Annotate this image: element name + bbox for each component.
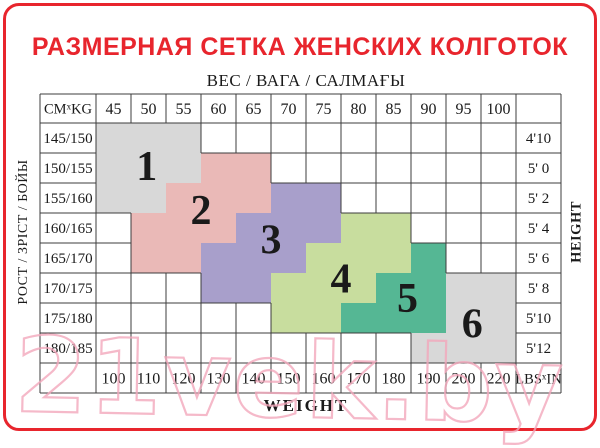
lbs-footer-value: 120 <box>172 371 196 388</box>
cm-row-label: 180/185 <box>43 341 92 357</box>
ft-row-label: 5' 4 <box>528 221 550 237</box>
cm-row-label: 175/180 <box>43 311 92 327</box>
kg-header-value: 50 <box>141 101 157 118</box>
ft-row-label: 5' 8 <box>528 281 549 297</box>
kg-header-value: 85 <box>386 101 402 118</box>
size-region-5 <box>411 243 446 273</box>
size-region-4 <box>341 213 411 243</box>
cm-row-label: 170/175 <box>43 281 92 297</box>
lbs-footer-value: 160 <box>312 371 336 388</box>
size-number-6: 6 <box>462 302 483 348</box>
kg-header-value: 70 <box>281 101 297 118</box>
lbs-footer-value: 140 <box>242 371 266 388</box>
size-region-4 <box>271 273 376 303</box>
size-grid-table: 4550556065707580859095100100110120130140… <box>0 0 600 434</box>
lbs-footer-value: 180 <box>382 371 406 388</box>
size-region-6 <box>446 273 516 303</box>
cm-row-label: 165/170 <box>43 251 92 267</box>
lbs-footer-value: 110 <box>137 371 160 388</box>
size-region-2 <box>131 243 201 273</box>
size-region-2 <box>166 183 271 213</box>
kg-header-value: 55 <box>176 101 192 118</box>
cm-row-label: 160/165 <box>43 221 92 237</box>
size-region-4 <box>271 303 341 333</box>
ft-row-label: 5'12 <box>526 341 551 357</box>
lbs-footer-value: 220 <box>487 371 511 388</box>
lbs-footer-value: 190 <box>417 371 441 388</box>
size-region-2 <box>201 153 271 183</box>
size-number-1: 1 <box>136 144 157 190</box>
ft-row-label: 5' 2 <box>528 191 549 207</box>
size-region-2 <box>131 213 236 243</box>
cm-row-label: 155/160 <box>43 191 92 207</box>
size-region-4 <box>306 243 411 273</box>
size-region-5 <box>341 303 446 333</box>
size-number-3: 3 <box>261 218 282 264</box>
kg-header-value: 80 <box>351 101 367 118</box>
size-region-3 <box>201 243 306 273</box>
lbs-footer-value: 130 <box>207 371 231 388</box>
ft-row-label: 5' 0 <box>528 161 549 177</box>
ft-row-label: 4'10 <box>526 131 551 147</box>
size-region-3 <box>271 183 341 213</box>
kg-header-value: 65 <box>246 101 262 118</box>
kg-header-value: 75 <box>316 101 332 118</box>
size-number-2: 2 <box>191 188 212 234</box>
lbs-footer-value: 150 <box>277 371 301 388</box>
size-region-3 <box>236 213 341 243</box>
kg-header-value: 60 <box>211 101 227 118</box>
cm-row-label: 150/155 <box>43 161 92 177</box>
cm-kg-corner-label: CMxKG <box>44 102 93 118</box>
kg-header-value: 45 <box>106 101 122 118</box>
lbs-in-corner-label: LBSxIN <box>515 372 562 388</box>
lbs-footer-value: 100 <box>102 371 126 388</box>
lbs-footer-value: 200 <box>452 371 476 388</box>
size-number-5: 5 <box>397 276 418 322</box>
ft-row-label: 5'10 <box>526 311 551 327</box>
kg-header-value: 90 <box>421 101 437 118</box>
cm-row-label: 145/150 <box>43 131 92 147</box>
lbs-footer-value: 170 <box>347 371 371 388</box>
size-region-3 <box>201 273 271 303</box>
ft-row-label: 5' 6 <box>528 251 550 267</box>
kg-header-value: 95 <box>456 101 472 118</box>
size-number-4: 4 <box>331 257 352 303</box>
kg-header-value: 100 <box>487 101 511 118</box>
